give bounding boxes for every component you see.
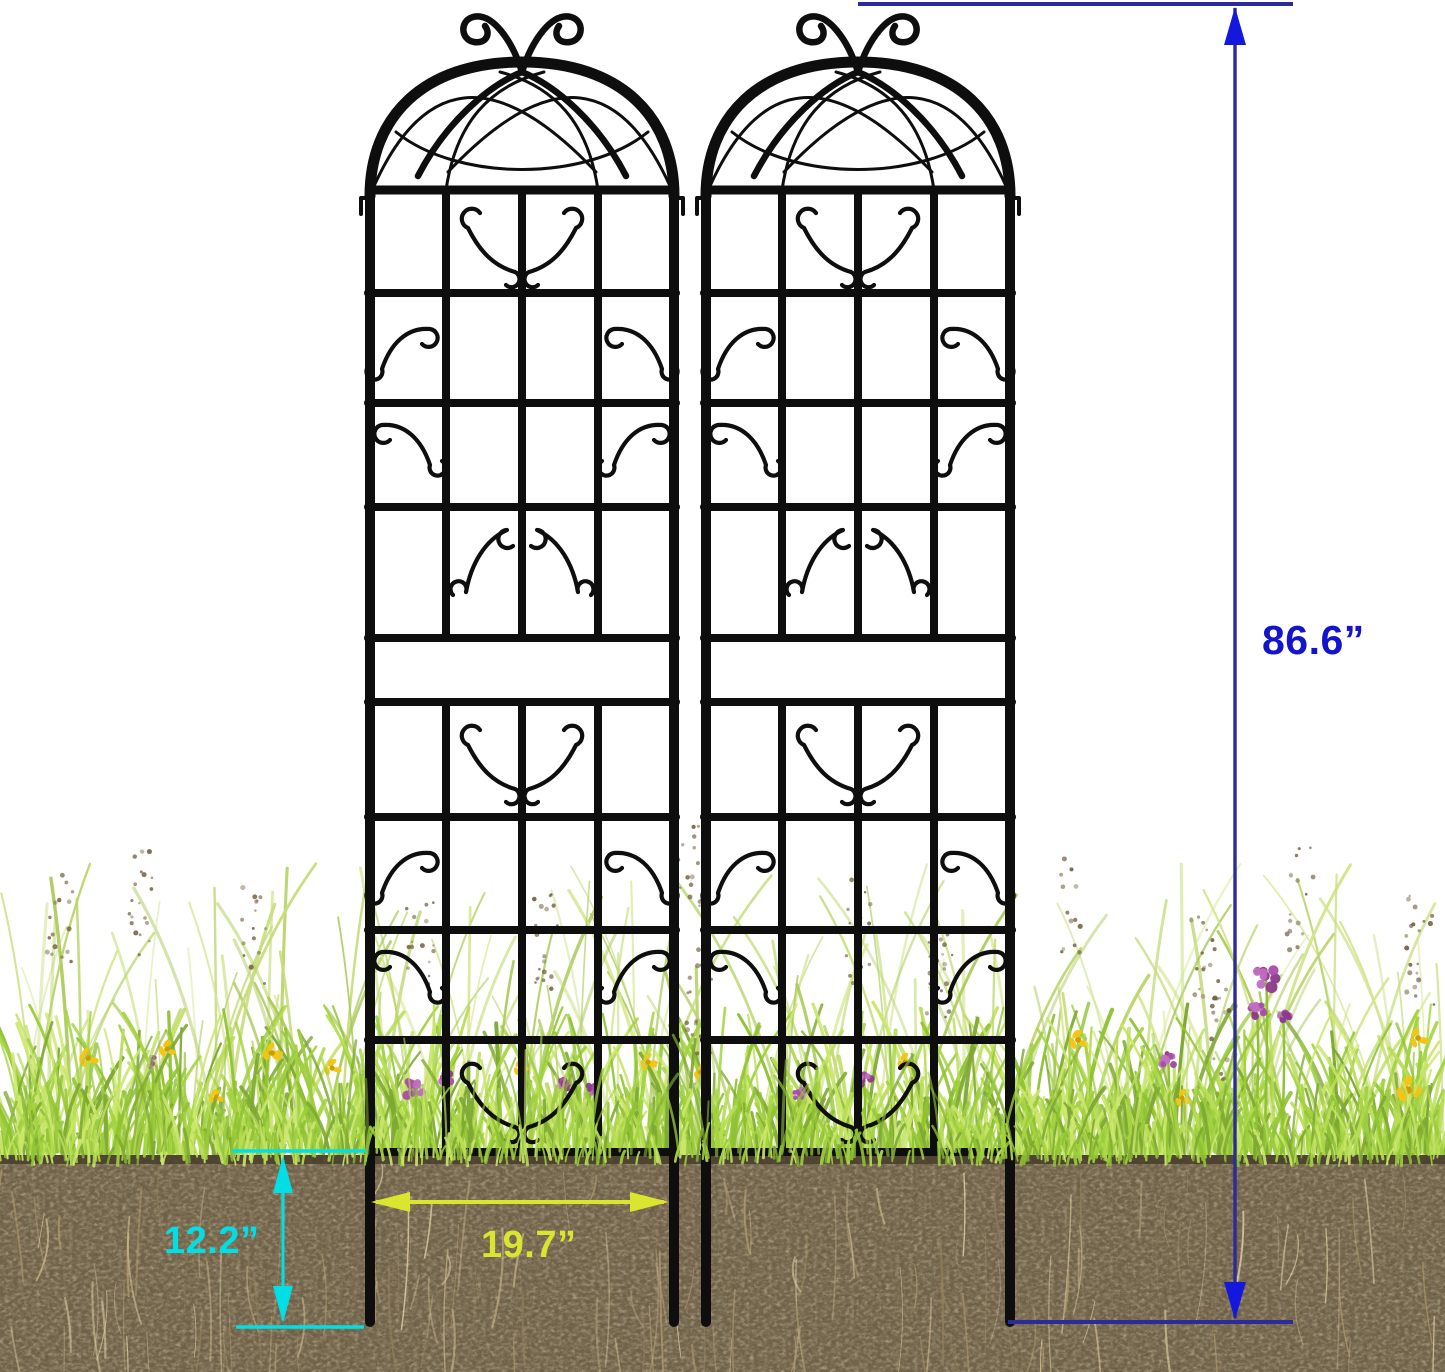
trellis-dimension-diagram: 86.6” 12.2” 19.7” (0, 0, 1445, 1372)
height-dimension-label: 86.6” (1262, 620, 1365, 661)
scene-canvas (0, 0, 1445, 1372)
soil-cross-section (0, 1155, 1445, 1372)
width-dimension-label: 19.7” (481, 1226, 576, 1264)
buried-depth-dimension-label: 12.2” (164, 1222, 259, 1260)
